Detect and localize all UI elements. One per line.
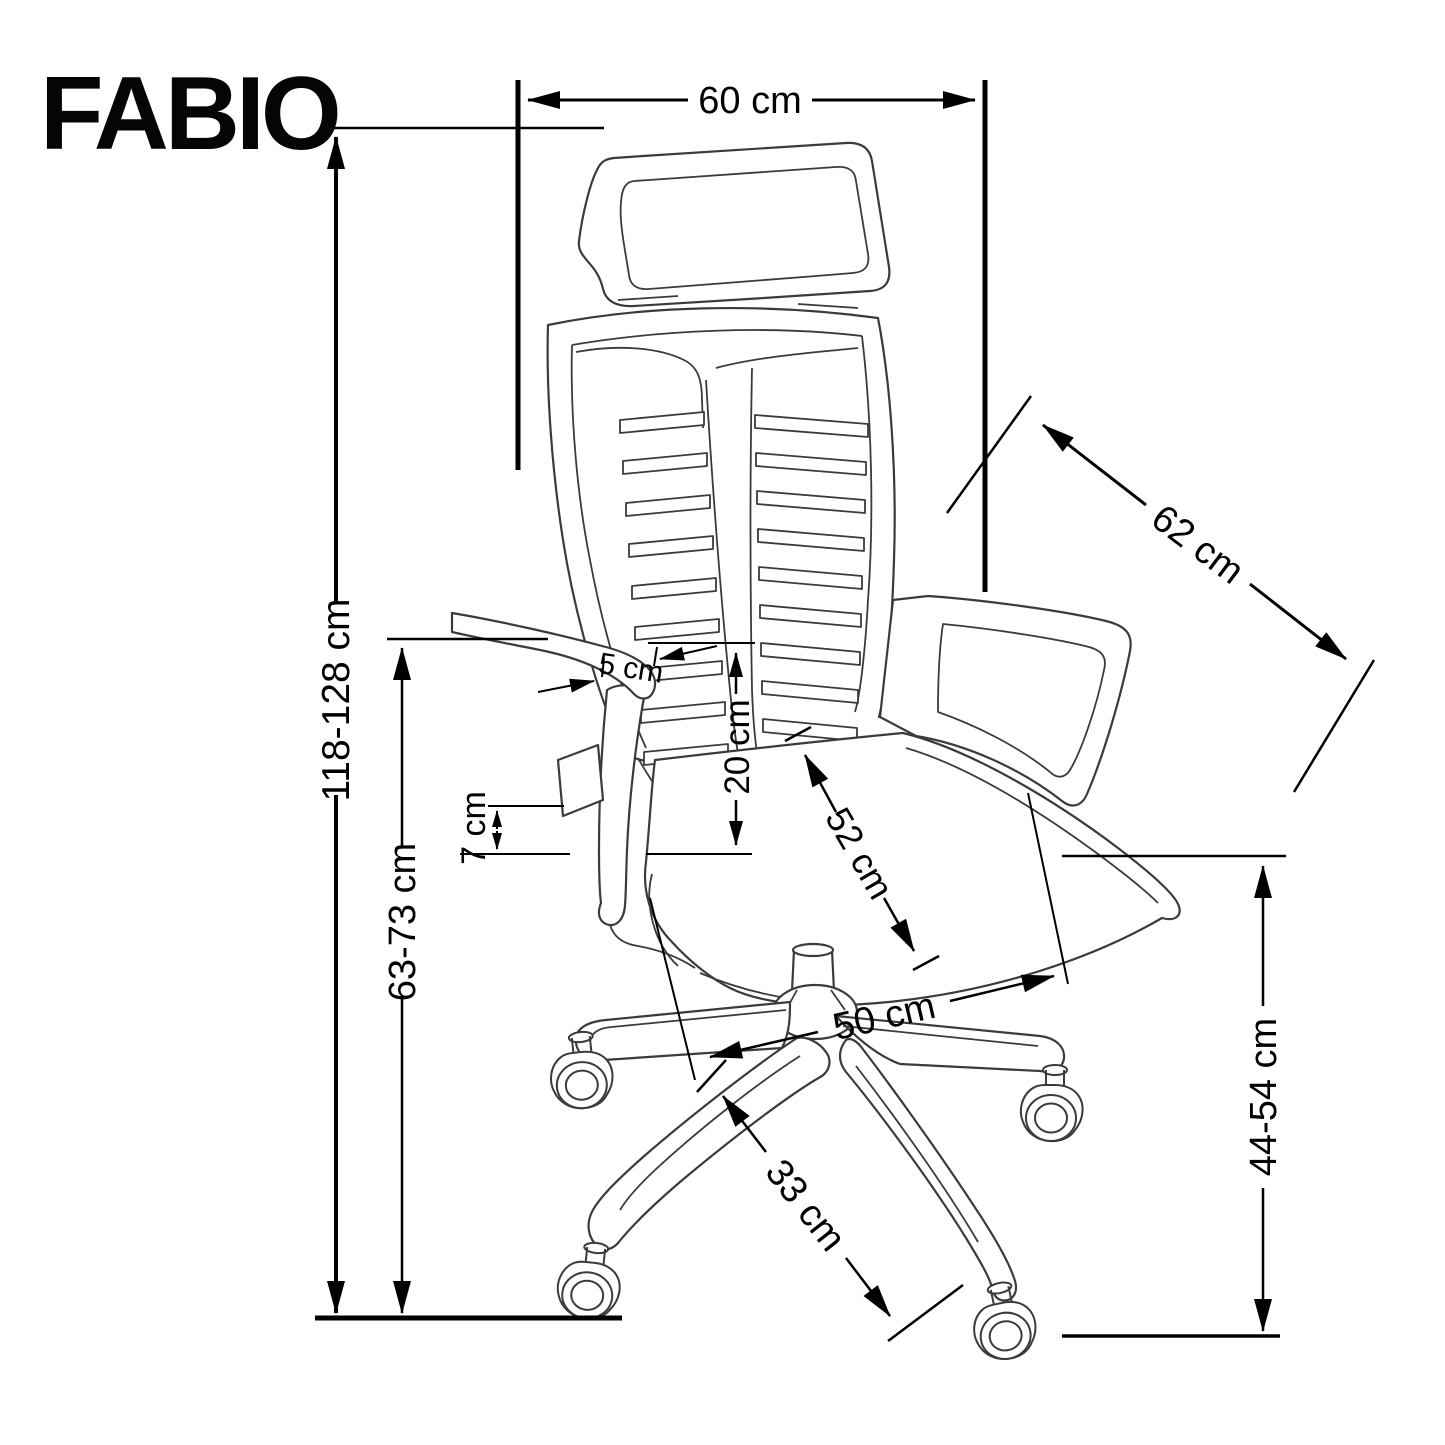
dim-label-base-leg: 33 cm — [757, 1152, 854, 1259]
dim-label-backrest-height: 63-73 cm — [382, 843, 424, 1001]
mesh-slat — [629, 536, 713, 557]
mesh-slat — [759, 567, 862, 589]
dim-armrest-pad: 7 cm — [455, 791, 570, 865]
dim-label-top-width: 60 cm — [698, 80, 801, 122]
dim-label-backrest-width: 62 cm — [1143, 497, 1251, 593]
armrest-height-block — [558, 745, 603, 816]
mesh-slat — [760, 605, 861, 627]
chair-base — [546, 944, 1082, 1365]
mesh-panel-top — [576, 348, 858, 428]
dim-label-backrest-above-seat: 20 cm — [718, 699, 757, 794]
dim-label-total-height: 118-128 cm — [315, 598, 358, 801]
mesh-slat — [755, 415, 868, 437]
mesh-slat — [626, 495, 710, 516]
caster-right-rear — [1021, 1065, 1083, 1141]
diagram-canvas: FABIO 60 cm 118-128 cm 63-73 cm 44-54 cm… — [0, 0, 1445, 1445]
mesh-slat — [762, 681, 858, 703]
mesh-slat — [756, 453, 866, 475]
mesh-slat — [641, 702, 725, 723]
product-title: FABIO — [40, 56, 338, 172]
dim-backrest-height: 63-73 cm — [382, 639, 548, 1313]
dim-label-seat-height: 44-54 cm — [1243, 1018, 1285, 1176]
dim-label-armrest-pad: 7 cm — [455, 791, 493, 865]
chair-headrest — [579, 143, 890, 308]
caster-front-left — [555, 1239, 624, 1321]
mesh-slat — [757, 491, 865, 513]
mesh-slat — [632, 578, 716, 599]
dim-total-height: 118-128 cm — [315, 128, 604, 1313]
mesh-slat — [758, 529, 864, 551]
mesh-slat — [623, 453, 707, 474]
chair-drawing — [452, 143, 1180, 1365]
mesh-slats-right — [755, 415, 868, 779]
mesh-slat — [761, 643, 860, 665]
gas-lift-top — [793, 944, 833, 956]
mesh-slat — [620, 412, 704, 433]
caster-front-right — [965, 1277, 1041, 1364]
mesh-slat — [635, 619, 719, 640]
chair-dimension-diagram: FABIO 60 cm 118-128 cm 63-73 cm 44-54 cm… — [0, 0, 1445, 1445]
armrest-left-post — [599, 685, 645, 925]
mesh-slat — [763, 719, 857, 741]
